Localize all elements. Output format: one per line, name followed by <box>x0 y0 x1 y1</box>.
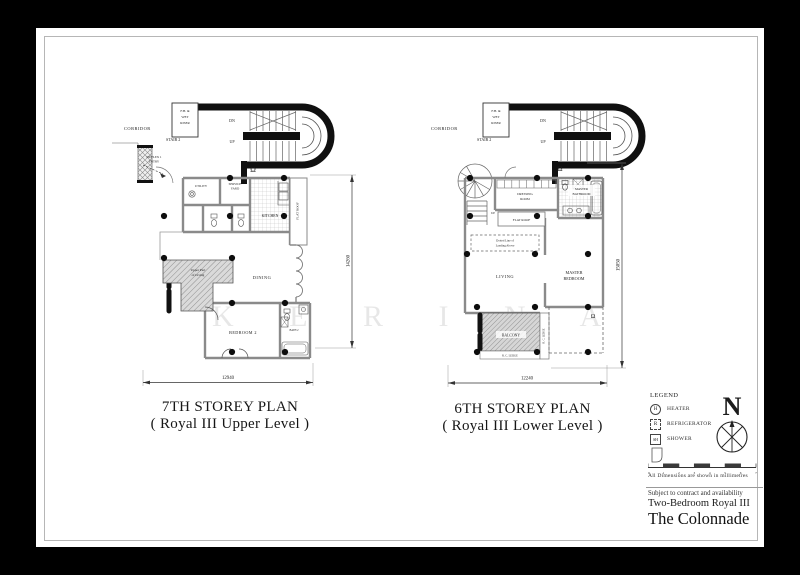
living-label: LIVING <box>496 274 514 279</box>
svg-text:BALCONY: BALCONY <box>502 334 521 338</box>
right-plan-title-line2: ( Royal III Lower Level ) <box>405 418 640 435</box>
hose-reel-icon: Ω <box>557 165 562 173</box>
dn-label: DN <box>229 118 235 123</box>
svg-text:ENTRY: ENTRY <box>149 160 160 164</box>
disclaimer-text: Subject to contract and availability <box>648 490 743 497</box>
project-name-text: The Colonnade <box>648 509 749 529</box>
master-bedroom-label: BEDROOM <box>564 276 585 281</box>
corridor-label: CORRIDOR <box>124 126 151 131</box>
dimension-width <box>143 363 313 386</box>
rc-ledge-label-vertical: R. C. LEDGE <box>543 328 546 343</box>
title-block-divider <box>646 487 763 488</box>
rc-ledge-label: R. C. LEDGE <box>502 355 518 358</box>
stair-label: STAIR 2 <box>166 137 180 142</box>
stair-label: STAIR 2 <box>477 137 491 142</box>
right-plan-title-line1: 6TH STOREY PLAN <box>405 401 640 418</box>
riser-label: F.H. & <box>180 109 190 113</box>
floor-plan-6th-storey: CORRIDOR STAIR 2 UP DRESSING ROOM MASTER… <box>425 55 715 400</box>
svg-text:Dotted Line of: Dotted Line of <box>496 239 514 243</box>
dimension-height-value: 15050 <box>617 258 622 271</box>
svg-text:7: 7 <box>755 471 757 475</box>
dressing-label: ROOM <box>520 197 530 201</box>
corridor-wall <box>112 143 138 147</box>
entry-door-arc <box>505 167 516 178</box>
internal-stair <box>458 164 492 225</box>
heater-icon: H <box>650 404 661 415</box>
bay-window-arcs <box>290 245 303 303</box>
landing-above-note: Dotted Line of Landing Above <box>471 235 539 251</box>
north-arrow: N <box>705 393 759 457</box>
refrigerator-icon: R <box>650 419 661 430</box>
lattice-pillar <box>137 145 153 183</box>
dining-label: DINING <box>253 275 272 280</box>
riser-label: WET <box>181 115 189 119</box>
svg-text:Landing Above: Landing Above <box>496 244 515 248</box>
fixture-icon: Ω <box>591 314 596 320</box>
up-label: UP <box>491 211 495 215</box>
corridor-label: CORRIDOR <box>431 126 458 131</box>
left-plan-title-line1: 7TH STOREY PLAN <box>105 399 355 416</box>
wardrobe <box>497 180 556 188</box>
utility-label: UTILITY <box>195 184 208 188</box>
svg-text:FLAT ROOF: FLAT ROOF <box>513 218 531 222</box>
drawing-sheet-page: { "plans": { "left": { "title": "7TH STO… <box>0 0 800 575</box>
svg-text:DUPLEX 1: DUPLEX 1 <box>147 155 162 159</box>
right-plan-title: 6TH STOREY PLAN ( Royal III Lower Level … <box>405 401 640 435</box>
left-plan-title-line2: ( Royal III Upper Level ) <box>105 416 355 433</box>
flat-roof-strip: FLAT ROOF <box>290 178 307 245</box>
svg-text:of Living: of Living <box>192 273 205 277</box>
service-yard-label: SERVICE <box>229 182 242 186</box>
riser-label: RISER <box>180 121 190 125</box>
kitchen-label: KITCHEN <box>262 214 279 218</box>
dimension-height-value: 14260 <box>347 254 352 267</box>
bedroom2-label: BEDROOM 2 <box>229 330 257 335</box>
left-plan-title: 7TH STOREY PLAN ( Royal III Upper Level … <box>105 399 355 433</box>
bath2-label: BATH 2 <box>289 329 299 332</box>
dimension-width-value: 12240 <box>521 377 534 382</box>
masterbath-label: BATHROOM <box>573 192 591 196</box>
master-bedroom-label: MASTER <box>566 270 583 275</box>
dressing-label: DRESSING <box>517 192 533 196</box>
shower-icon: SH <box>650 434 661 445</box>
floor-plan-7th-storey: F.H. & WET RISER DN UP CORRIDOR STAIR 2 … <box>110 55 390 400</box>
up-label: UP <box>229 139 235 144</box>
unit-type-text: Two-Bedroom Royal III <box>648 498 750 509</box>
dimension-note: All Dimensions are shown in millimetres <box>648 473 748 479</box>
service-yard-label: YARD <box>231 187 240 191</box>
north-label: N <box>723 393 742 421</box>
hose-reel-icon: Ω <box>250 165 256 174</box>
dimension-width-value: 12940 <box>222 376 235 381</box>
svg-text:Upper Part: Upper Part <box>191 268 206 272</box>
masterbath-label: MASTER <box>575 187 589 191</box>
svg-text:FLAT ROOF: FLAT ROOF <box>296 202 300 220</box>
